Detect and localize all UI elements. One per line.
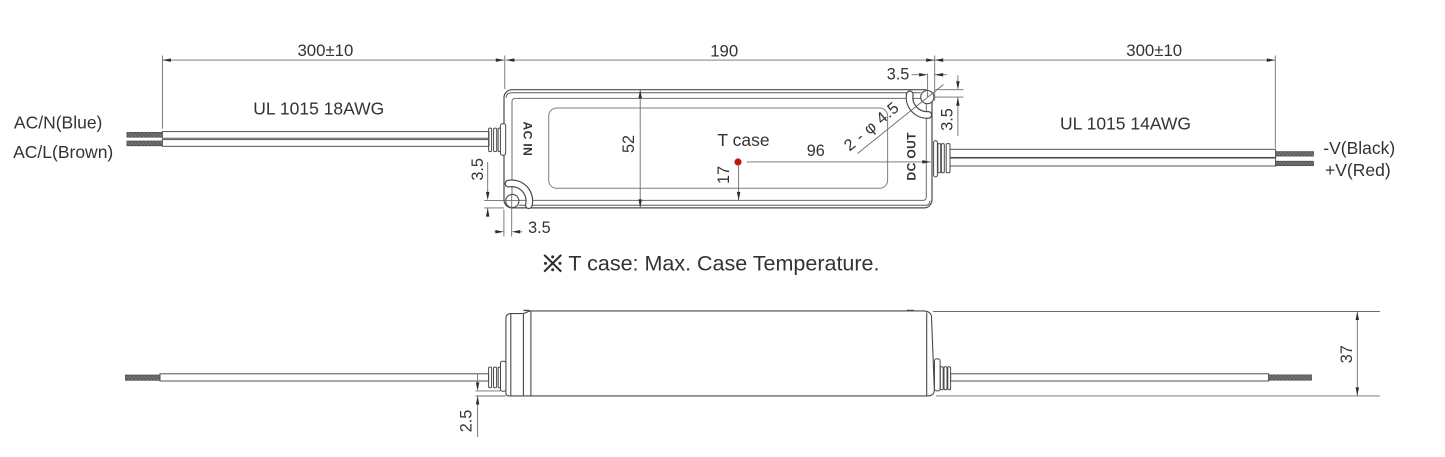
svg-text:UL 1015 18AWG: UL 1015 18AWG xyxy=(253,99,384,119)
svg-text:2 - φ 4.5: 2 - φ 4.5 xyxy=(841,98,903,154)
svg-text:300±10: 300±10 xyxy=(1126,41,1182,60)
svg-text:300±10: 300±10 xyxy=(297,41,353,60)
svg-text:AC/N(Blue): AC/N(Blue) xyxy=(14,113,103,133)
svg-text:T case: Max. Case Temperature.: T case: Max. Case Temperature. xyxy=(568,252,879,276)
svg-text:190: 190 xyxy=(710,41,738,60)
svg-text:+V(Red): +V(Red) xyxy=(1325,160,1391,180)
svg-text:2.5: 2.5 xyxy=(458,410,476,433)
svg-text:T case: T case xyxy=(717,130,769,150)
svg-text:3.5: 3.5 xyxy=(469,158,487,181)
svg-text:52: 52 xyxy=(620,135,638,153)
svg-text:3.5: 3.5 xyxy=(887,65,910,83)
svg-text:UL 1015 14AWG: UL 1015 14AWG xyxy=(1060,114,1191,134)
svg-text:AC/L(Brown): AC/L(Brown) xyxy=(13,142,113,162)
svg-text:3.5: 3.5 xyxy=(528,219,551,237)
svg-text:96: 96 xyxy=(807,142,825,160)
svg-text:-V(Black): -V(Black) xyxy=(1323,138,1395,158)
svg-text:37: 37 xyxy=(1338,345,1356,363)
svg-text:3.5: 3.5 xyxy=(939,108,957,131)
svg-text:AC IN: AC IN xyxy=(520,122,534,157)
svg-text:DC OUT: DC OUT xyxy=(905,132,919,181)
svg-text:17: 17 xyxy=(715,166,733,184)
